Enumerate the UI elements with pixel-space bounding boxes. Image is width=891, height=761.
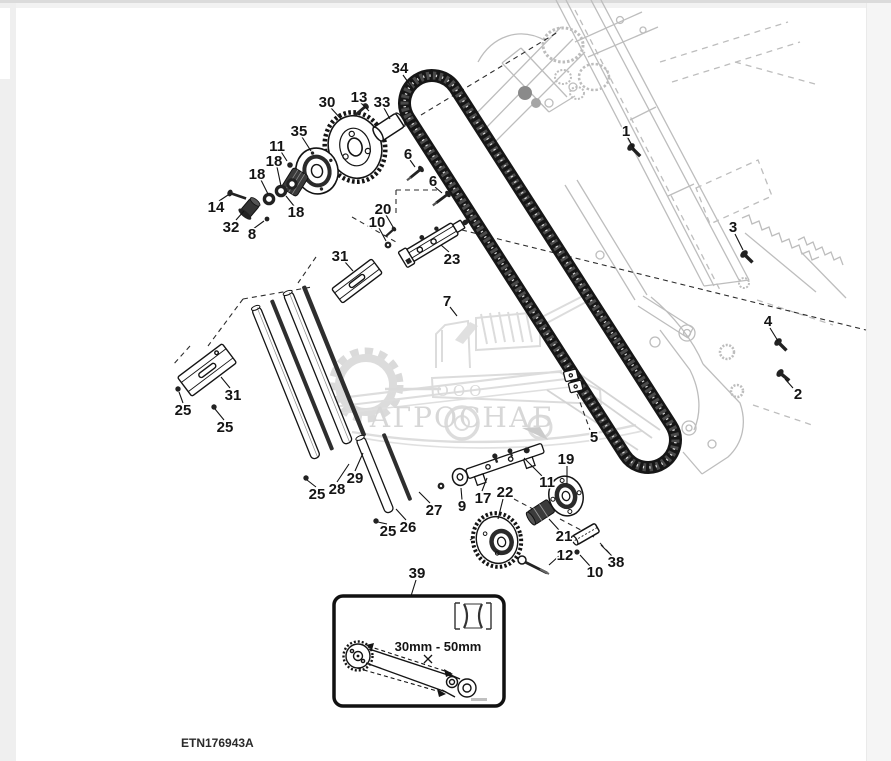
callout-label-6: 6 [404,146,412,163]
pin-38 [570,523,599,546]
bolt-3 [739,249,756,266]
drawing-code-text: ETN176943A [181,736,254,750]
watermark-company-text: АГРОСНАБ [369,401,554,434]
callout-label-29: 29 [347,470,364,487]
callout-label-34: 34 [392,60,409,77]
callout-label-31: 31 [332,248,349,265]
exploded-parts-diagram: ООО АГРОСНАБ [0,0,891,761]
callout-label-20: 20 [375,201,392,218]
callout-label-10: 10 [587,564,604,581]
callout-label-33: 33 [374,94,391,111]
bracket-31-upper [332,259,383,303]
callout-label-23: 23 [444,251,461,268]
nut-27 [438,483,445,490]
callout-label-27: 27 [426,502,443,519]
callout-label-26: 26 [400,519,417,536]
callout-label-25: 25 [380,523,397,540]
callout-label-25: 25 [309,486,326,503]
callout-label-11: 11 [539,474,555,491]
sprocket-22 [467,508,527,572]
callout-label-5: 5 [590,429,598,446]
callout-label-18: 18 [249,166,266,183]
callout-label-14: 14 [208,199,225,216]
callout-label-13: 13 [351,89,368,106]
callout-label-2: 2 [794,386,802,403]
bolt-20 [384,226,397,239]
callout-label-21: 21 [556,528,573,545]
callout-label-31: 31 [225,387,242,404]
callout-label-6: 6 [429,173,437,190]
callout-label-39: 39 [409,565,426,582]
hidden-sprocket [518,86,532,100]
callout-label-30: 30 [319,94,336,111]
callout-label-32: 32 [223,219,240,236]
parts-catalog-page: ООО АГРОСНАБ [0,0,891,761]
callout-label-7: 7 [443,293,451,310]
nut-10b [574,549,579,554]
watermark-ooo-text: ООО [437,382,486,400]
bolt-2 [775,368,792,384]
callout-label-19: 19 [558,451,575,468]
screw-8 [265,217,270,222]
bolt-12 [518,556,549,574]
callout-label-25: 25 [175,402,192,419]
bushing-32 [237,195,263,222]
callout-label-35: 35 [291,123,308,140]
inset-range-text: 30mm - 50mm [395,639,482,654]
support-arm-17 [464,438,548,487]
callout-label-28: 28 [329,481,346,498]
callout-label-4: 4 [764,313,773,330]
inset-fineprint [471,698,487,701]
callout-label-38: 38 [608,554,625,571]
callout-label-17: 17 [475,490,492,507]
callout-label-18: 18 [288,204,305,221]
callout-label-22: 22 [497,484,514,501]
bolt-4 [773,337,790,354]
hidden-sprocket [531,98,541,108]
pin-11a [287,162,293,168]
callout-label-18: 18 [266,153,283,170]
bracket-23 [397,210,473,267]
callout-label-12: 12 [557,547,574,564]
inset-box-39: 30mm - 50mm [334,596,504,706]
callout-label-9: 9 [458,498,466,515]
bolt-6a [405,165,425,183]
callout-label-8: 8 [248,226,256,243]
nut-10a [385,242,392,249]
callout-label-25: 25 [217,419,234,436]
callout-label-1: 1 [622,123,630,140]
bolt-14 [226,189,247,202]
callout-label-3: 3 [729,219,737,236]
